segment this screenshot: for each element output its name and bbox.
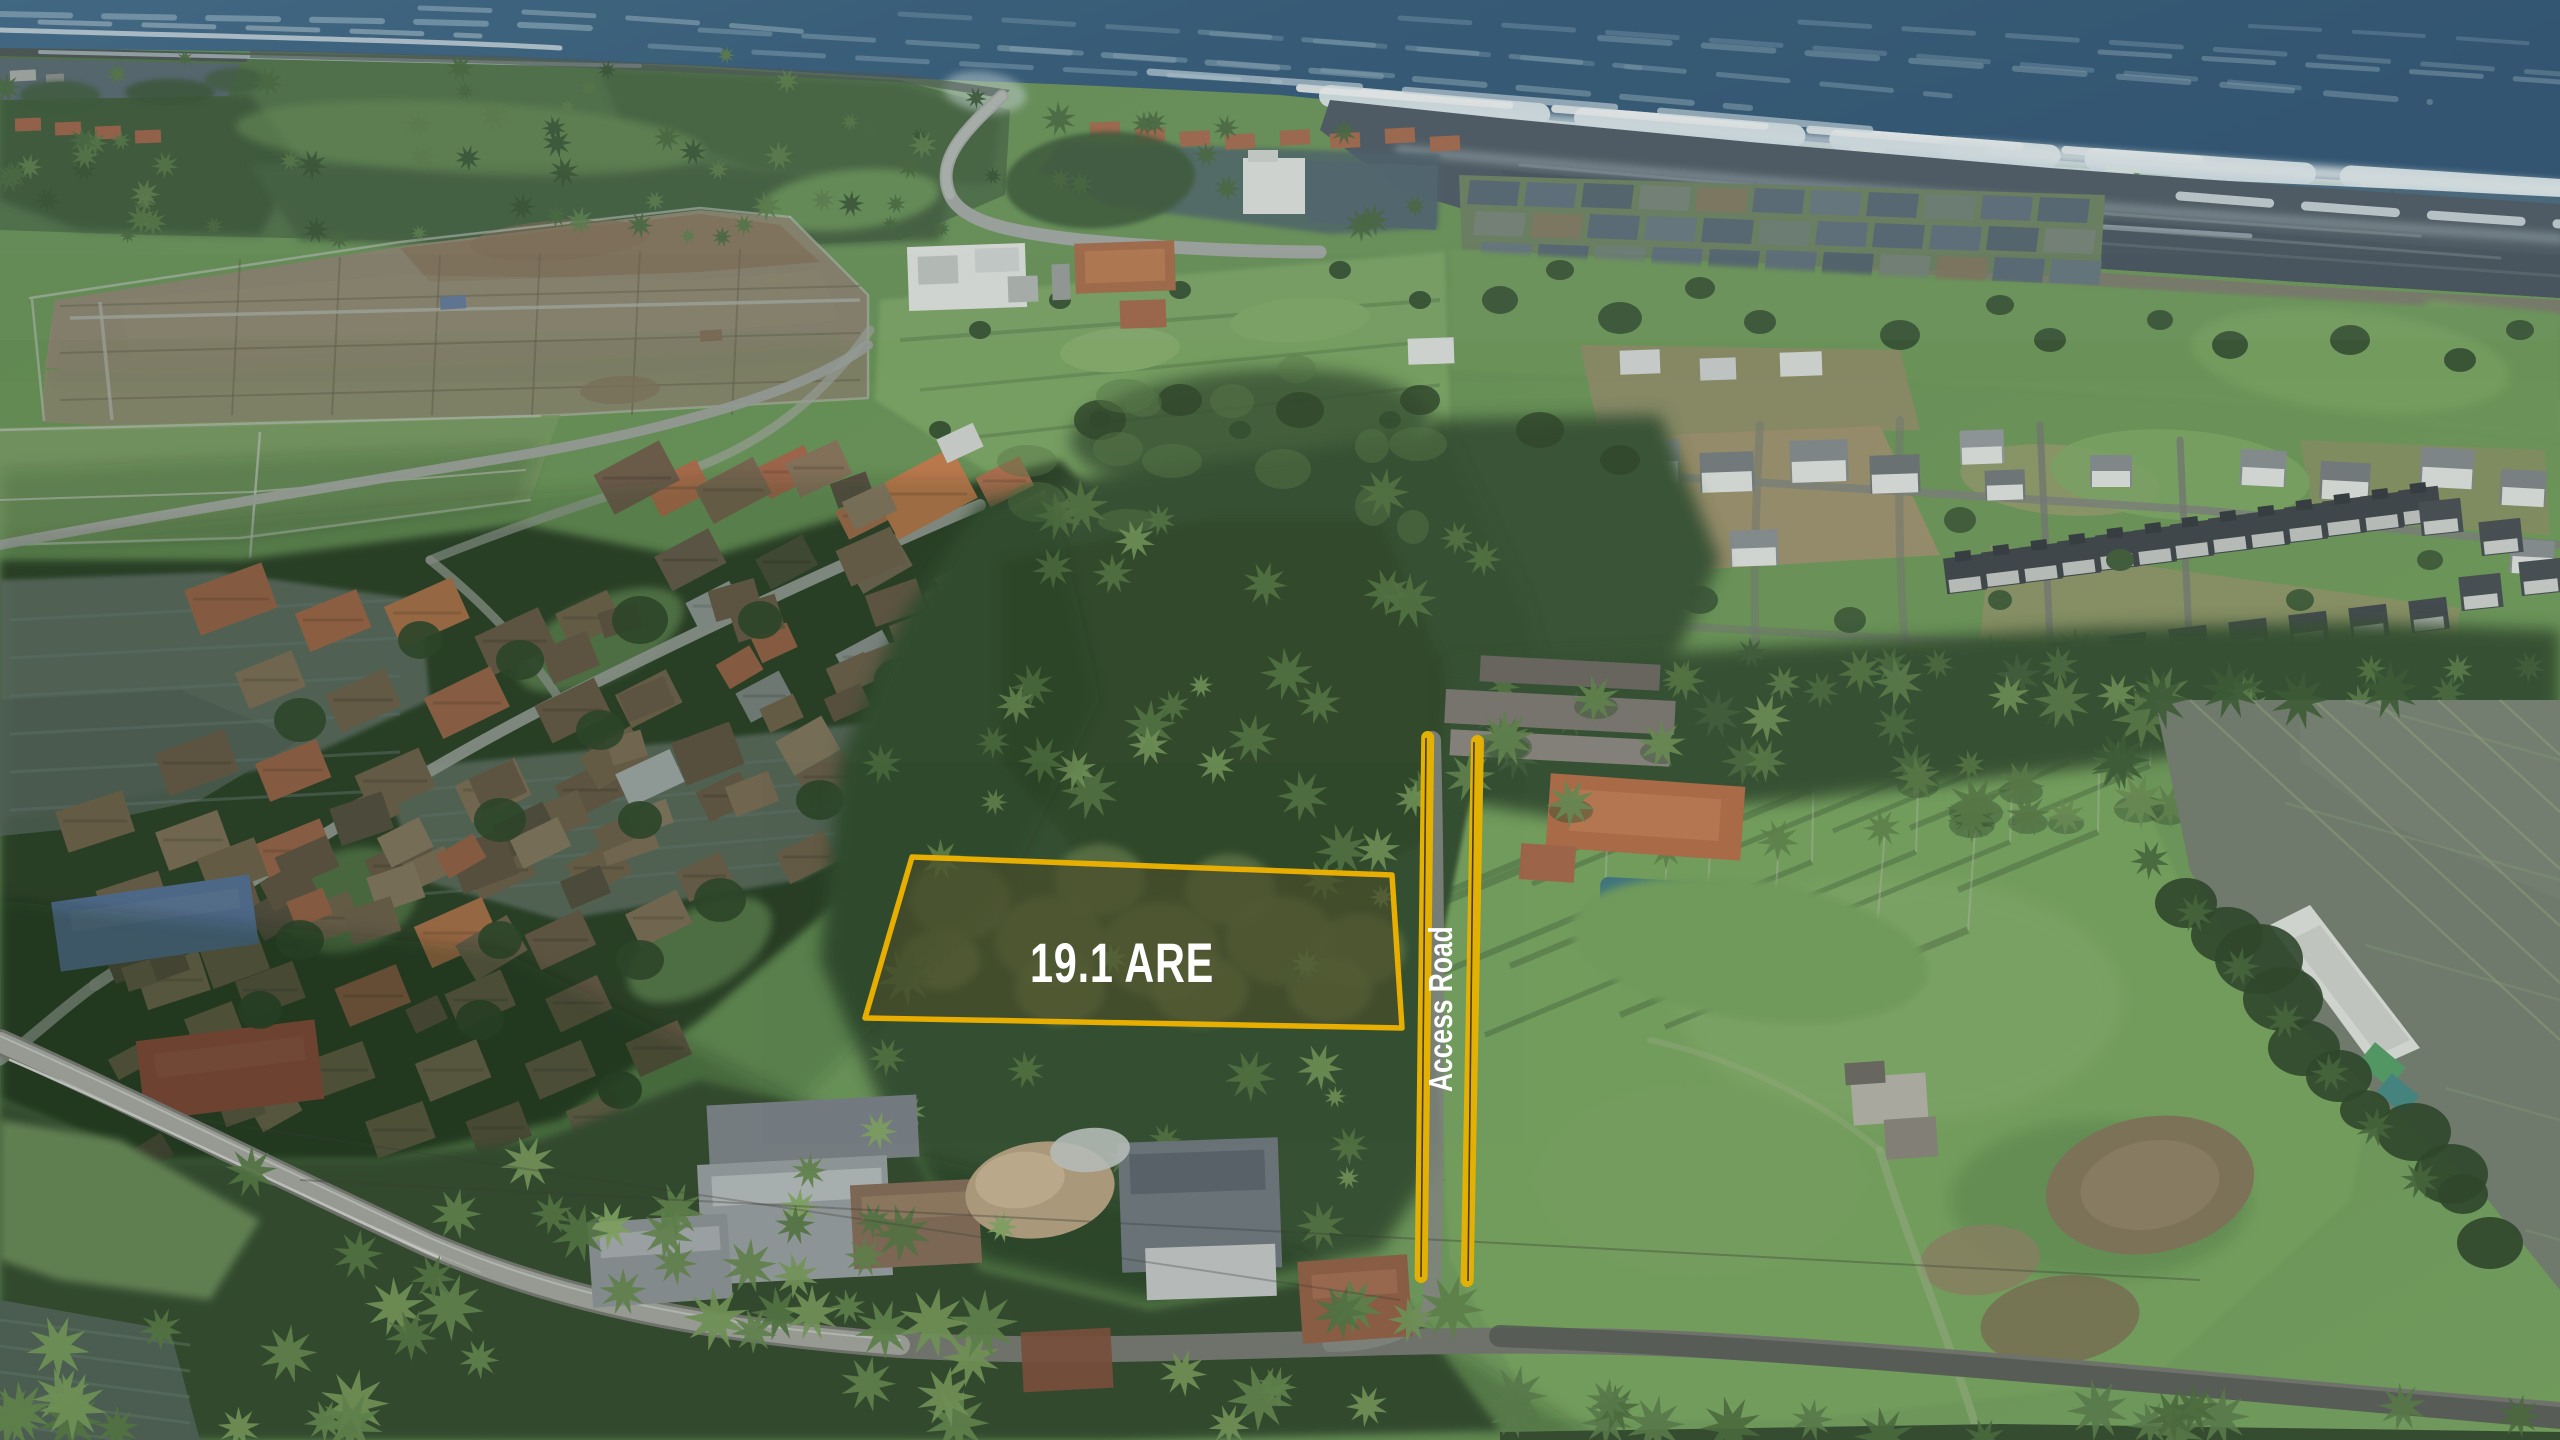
svg-text:19.1 ARE: 19.1 ARE [1030,932,1214,995]
svg-text:Access Road: Access Road [1423,926,1459,1092]
